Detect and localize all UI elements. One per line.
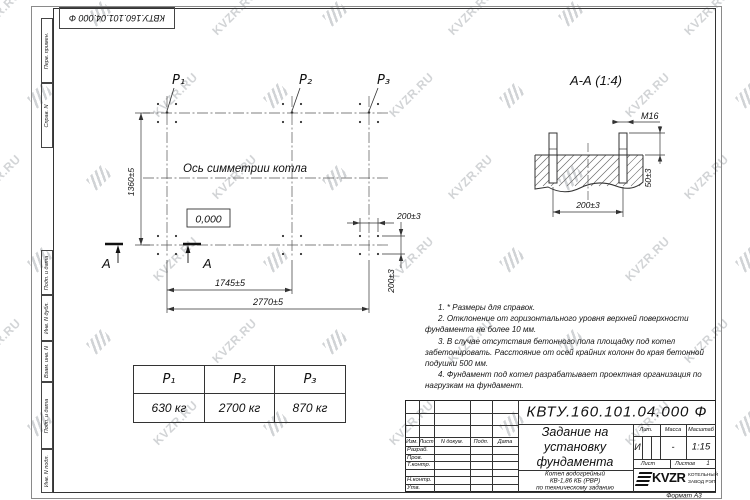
bolt-thread-label: M16	[641, 111, 659, 121]
dim-arrow	[285, 288, 292, 292]
margin-cell-perv-primen: Перв. примен.	[41, 18, 53, 83]
tb-row-prov: Пров.	[407, 455, 422, 461]
mass-label: Масса	[665, 427, 681, 433]
rotated-designation-stamp: КВТУ.160.101.04.000 Ф	[59, 7, 175, 29]
tb-col-izm: Изм.	[406, 439, 418, 445]
margin-cell-vzam-inv: Взам. инв. N	[41, 341, 53, 382]
dim-arrow	[399, 229, 403, 236]
product-line3: по техническому заданию	[536, 485, 614, 492]
symmetry-axis-label: Ось симметрии котла	[183, 163, 307, 175]
dim-arrow	[378, 221, 385, 225]
tb-col-ndokum: N докум.	[441, 439, 463, 445]
dim-arrow	[616, 210, 623, 214]
dim-arrow	[553, 210, 560, 214]
watermark-text: KVZR.RU	[0, 0, 23, 38]
load-point-leaders	[167, 88, 378, 111]
anchor-bolt-dots	[157, 103, 379, 255]
load-table-header-p1: P₁	[133, 365, 205, 394]
margin-cell-inv-podl: Инв. N подл.	[41, 449, 53, 493]
watermark-logo-icon	[735, 410, 750, 436]
section-a-a-view: А-А (1:4) M16 50±3 200±3	[520, 65, 690, 230]
logo-sub2: ЗАВОД РЭП	[688, 480, 715, 485]
dim-1745-text: 1745±5	[215, 278, 246, 288]
dim-bolt-y-text: 200±3	[386, 269, 396, 294]
tb-col-list: Лист	[419, 439, 433, 445]
dim-arrow	[139, 113, 144, 120]
watermark-logo-icon	[735, 82, 750, 108]
dim-bolt-group-lines	[347, 218, 405, 268]
drawing-designation: КВТУ.160.101.04.000 Ф	[527, 404, 708, 421]
margin-cell-podp-data-1: Подп. и дата	[41, 250, 53, 295]
dim-1360-text: 1360±5	[126, 168, 136, 197]
watermark-text: KVZR.RU	[0, 152, 23, 202]
section-title: А-А (1:4)	[569, 73, 622, 88]
note-3: 3. В случае отсутствия бетонного пола пл…	[425, 336, 710, 370]
dim-arrow	[353, 221, 360, 225]
load-table-header-p2: P₂	[204, 365, 275, 394]
section-letter-right: А	[202, 256, 212, 271]
section-letter-left: А	[101, 256, 111, 271]
dim-bolt-x-text: 200±3	[396, 211, 421, 221]
doc-title-line2: установку	[544, 440, 606, 454]
load-table-value-p3: 870 кг	[274, 393, 346, 423]
dim-arrow	[399, 254, 403, 261]
dim-arrow	[362, 307, 369, 311]
scale-label: Масштаб	[688, 427, 714, 433]
dim-arrow	[658, 127, 662, 134]
tb-row-tkontr: Т.контр.	[407, 462, 430, 468]
dim-arrow	[658, 155, 662, 162]
tb-row-razrab: Разраб.	[407, 447, 428, 453]
margin-cell-podp-data-2: Подп. и дата	[41, 382, 53, 449]
section-cut-marks	[105, 244, 201, 263]
lit-value: И	[634, 442, 640, 452]
foundation-plan-view: P₁ P₂ P₃ Ось симметрии котла 0,000 1360±…	[60, 60, 420, 320]
format-note: Формат А3	[666, 493, 702, 500]
load-table-header-p3: P₃	[274, 365, 346, 394]
mass-value: -	[672, 442, 675, 452]
scale-value: 1:15	[692, 442, 711, 453]
dim-200-text: 200±3	[575, 200, 600, 210]
dim-arrow	[139, 238, 144, 245]
load-label-p2: P₂	[299, 73, 312, 88]
doc-title-line1: Задание на	[542, 425, 609, 439]
dim-arrow	[167, 307, 174, 311]
product-line1: Котел водогрейный	[545, 471, 605, 478]
tb-col-podp: Подп.	[474, 439, 489, 445]
load-label-p1: P₁	[172, 73, 185, 88]
tb-row-nkontr: Н.контр.	[407, 477, 432, 483]
margin-cell-inv-dubl: Инв. N дубл.	[41, 295, 53, 341]
note-2: 2. Отклонение от горизонтального уровня …	[425, 313, 710, 335]
watermark-logo-icon	[735, 246, 750, 272]
doc-title-line3: фундамента	[537, 455, 614, 469]
note-4: 4. Фундамент под котел разрабатывает про…	[425, 369, 710, 391]
kvzr-logo-text: KVZR	[652, 470, 685, 485]
dim-50-text: 50±3	[643, 168, 653, 187]
tb-col-data: Дата	[498, 439, 513, 445]
rotated-designation-text: КВТУ.160.101.04.000 Ф	[60, 8, 174, 28]
section-view-arrow	[116, 245, 121, 253]
dim-arrow	[167, 288, 174, 292]
engineering-drawing-sheet: { "watermark": { "text": "KVZR.RU" }, "f…	[0, 0, 750, 500]
dim-2770-text: 2770±5	[252, 297, 284, 307]
lit-label: Лит.	[640, 427, 653, 433]
technical-notes: 1. * Размеры для справок. 2. Отклонение …	[425, 302, 710, 392]
watermark-text: KVZR.RU	[0, 316, 23, 366]
sheet-label: Лист	[641, 461, 655, 467]
product-line2: КВ-1,86 КБ (РВР)	[550, 478, 600, 485]
load-table-value-p2: 2700 кг	[204, 393, 275, 423]
dim-arrow	[627, 120, 634, 124]
tb-row-utv: Утв.	[407, 485, 420, 491]
level-mark-value: 0,000	[195, 214, 221, 226]
dim-arrow	[613, 120, 620, 124]
section-view-arrow	[186, 245, 191, 253]
note-1: 1. * Размеры для справок.	[425, 302, 710, 313]
margin-cell-sprav-n: Справ. N	[41, 83, 53, 148]
plan-centerlines	[143, 96, 390, 258]
load-table-value-p1: 630 кг	[133, 393, 205, 423]
dim-1360-lines	[135, 113, 150, 245]
sheets-value: 1	[706, 461, 709, 467]
logo-sub1: КОТЕЛЬНЫЙ	[688, 473, 718, 478]
sheets-label: Листов	[675, 461, 695, 467]
load-label-p3: P₃	[377, 73, 390, 88]
